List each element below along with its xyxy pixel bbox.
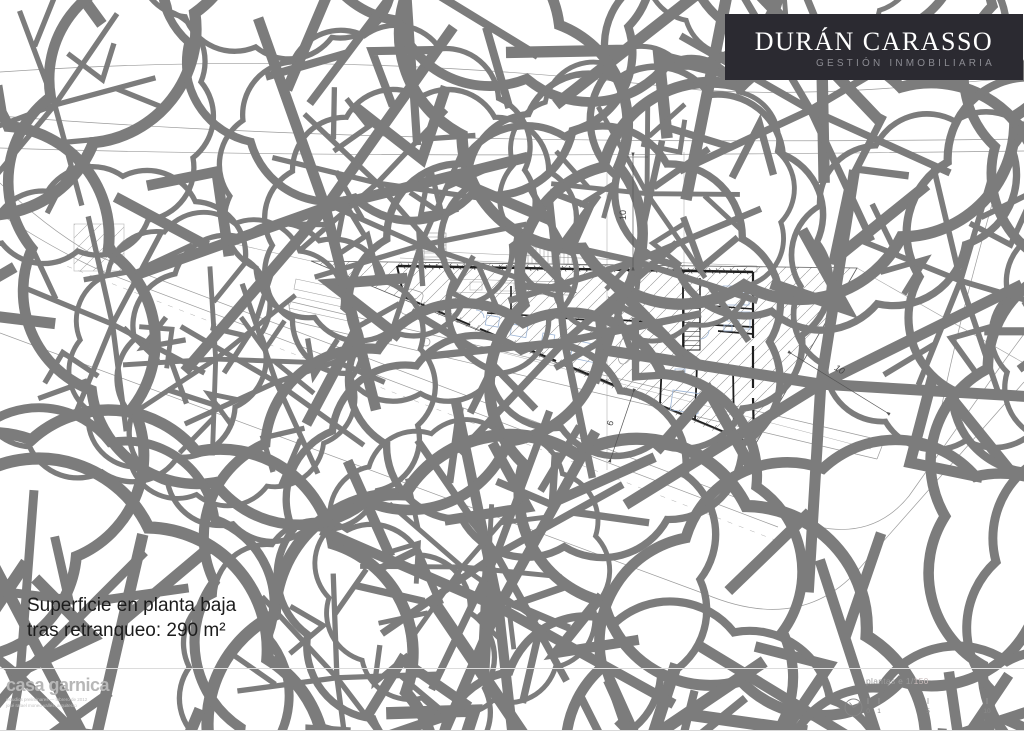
area-caption: Superficie en planta baja tras retranque…	[27, 593, 236, 643]
dim-label-setback-left: 6	[605, 419, 616, 427]
caption-line-2: tras retranqueo: 290 m²	[27, 618, 236, 643]
brand-name: DURÁN CARASSO	[755, 29, 993, 55]
plan-sheet: 10 6 10 DURÁN CARASSO GESTIÓN INMOBILIAR…	[0, 0, 1024, 731]
scale-bar-graphic: 0 1 5 10	[838, 674, 1018, 726]
footer-divider	[0, 668, 1024, 669]
scale-num-1: 1	[877, 708, 881, 715]
sheet-info: plantas e 1/150 0 1 5 10	[838, 674, 1018, 726]
north-arrow-hand	[850, 702, 862, 708]
scale-num-0: 0	[866, 708, 870, 715]
dim-label-vertical: 10	[618, 210, 628, 220]
brand-logo: DURÁN CARASSO GESTIÓN INMOBILIARIA	[725, 14, 1023, 80]
studio-block: casa garnica estudios preliminares — feb…	[6, 676, 109, 709]
scale-num-5: 5	[926, 708, 930, 715]
brand-tagline: GESTIÓN INMOBILIARIA	[816, 58, 995, 69]
scale-num-10: 10	[983, 708, 991, 715]
studio-credits: estudios preliminares — febrero de 2012 …	[6, 697, 109, 709]
caption-line-1: Superficie en planta baja	[27, 593, 236, 618]
studio-logo: casa garnica	[6, 676, 109, 694]
studio-credit-line-2: josé rafael moneo vallés, arquitecto	[6, 703, 109, 709]
